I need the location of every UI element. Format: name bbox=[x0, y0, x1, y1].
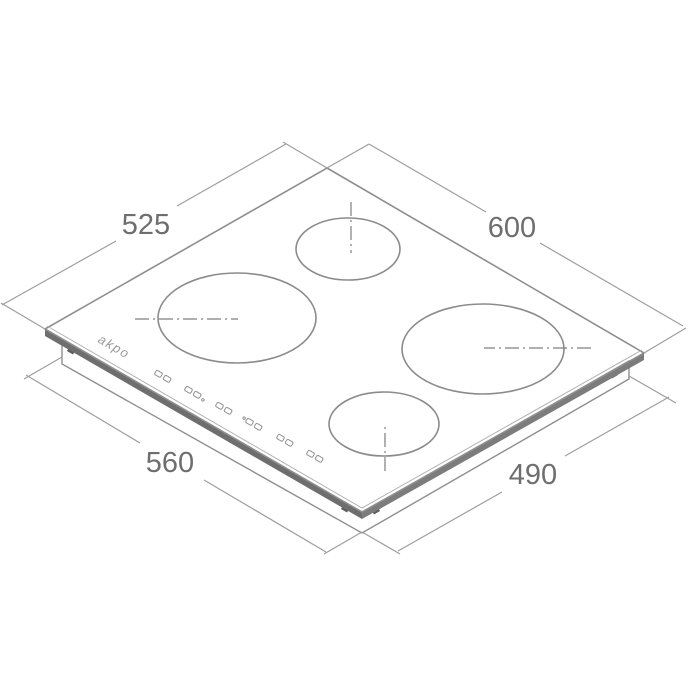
dimension-front-left: 560 bbox=[26, 375, 326, 552]
glass-edge-front-right bbox=[362, 353, 644, 519]
cooking-zone-left-large bbox=[158, 273, 316, 363]
dimension-label-560: 560 bbox=[146, 447, 194, 479]
touch-control-keys-icon bbox=[154, 370, 171, 383]
touch-control-keys-icon bbox=[306, 450, 323, 463]
dimension-label-600: 600 bbox=[488, 212, 536, 244]
cooking-zone-right-large bbox=[402, 304, 564, 394]
dimension-back-right: 600 bbox=[369, 144, 683, 326]
touch-control-keys-icon bbox=[276, 434, 293, 447]
touch-control-keys-icon bbox=[215, 402, 232, 415]
cooking-zone-back-small bbox=[296, 218, 400, 280]
cooking-zone-front-small bbox=[329, 392, 439, 456]
glass-edge-front-left bbox=[45, 329, 362, 519]
touch-control-keys-icon bbox=[242, 416, 263, 431]
hob-technical-drawing: akpo bbox=[0, 0, 700, 700]
dimension-label-525: 525 bbox=[122, 209, 170, 241]
dimension-label-490: 490 bbox=[509, 459, 557, 491]
touch-control-keys-icon bbox=[184, 386, 206, 402]
dimension-back-left: 525 bbox=[2, 144, 286, 305]
